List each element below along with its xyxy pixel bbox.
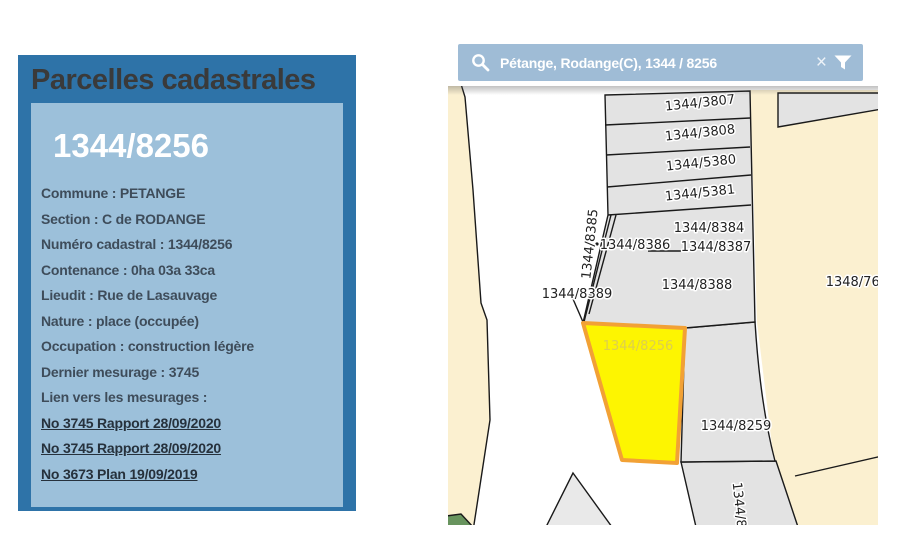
parcel-label-1344-8256: 1344/8256 [603,339,674,354]
parcel-label-1344-8389: 1344/8389 [542,287,613,302]
detail-lieudit: Lieudit : Rue de Lasauvage [41,283,343,309]
detail-nature: Nature : place (occupée) [41,309,343,335]
map-top-shadow [448,86,878,95]
mesurage-link-1[interactable]: No 3745 Rapport 28/09/2020 [41,411,343,437]
parcel-label-1344-8384: 1344/8384 [674,221,745,236]
detail-commune: Commune : PETANGE [41,181,343,207]
parcel-number: 1344/8256 [53,127,343,165]
mesurage-link-2[interactable]: No 3745 Rapport 28/09/2020 [41,436,343,462]
page: Parcelles cadastrales 1344/8256 Commune … [0,0,900,539]
search-bar[interactable]: Pétange, Rodange(C), 1344 / 8256 × [458,44,863,81]
parcel-info-panel: Parcelles cadastrales 1344/8256 Commune … [18,55,356,511]
parcel-label-1344-8386: 1344/8386 [600,238,671,253]
parcel-details: Commune : PETANGE Section : C de RODANGE… [41,181,343,487]
filter-icon[interactable] [833,53,853,72]
detail-lien-mesurages: Lien vers les mesurages : [41,385,343,411]
mesurage-link-3[interactable]: No 3673 Plan 19/09/2019 [41,462,343,488]
search-input[interactable]: Pétange, Rodange(C), 1344 / 8256 [500,55,812,71]
search-icon[interactable] [471,53,490,72]
parcel-label-1344-8259: 1344/8259 [701,419,772,434]
parcel-label-1348-7602: 1348/7602 [826,275,878,290]
detail-dernier-mesurage: Dernier mesurage : 3745 [41,360,343,386]
panel-title: Parcelles cadastrales [18,55,356,103]
parcel-label-1344-8387: 1344/8387 [681,240,752,255]
cadastral-map[interactable]: 1344/3807 1344/3808 1344/5380 1344/5381 … [448,86,878,525]
detail-section: Section : C de RODANGE [41,207,343,233]
parcel-info-card: 1344/8256 Commune : PETANGE Section : C … [31,103,343,507]
detail-numero-cadastral: Numéro cadastral : 1344/8256 [41,232,343,258]
parcel-bottom-center[interactable] [546,473,612,525]
parcel-label-1344-8388: 1344/8388 [662,278,733,293]
detail-occupation: Occupation : construction légère [41,334,343,360]
detail-contenance: Contenance : 0ha 03a 33ca [41,258,343,284]
close-icon[interactable]: × [812,44,831,81]
